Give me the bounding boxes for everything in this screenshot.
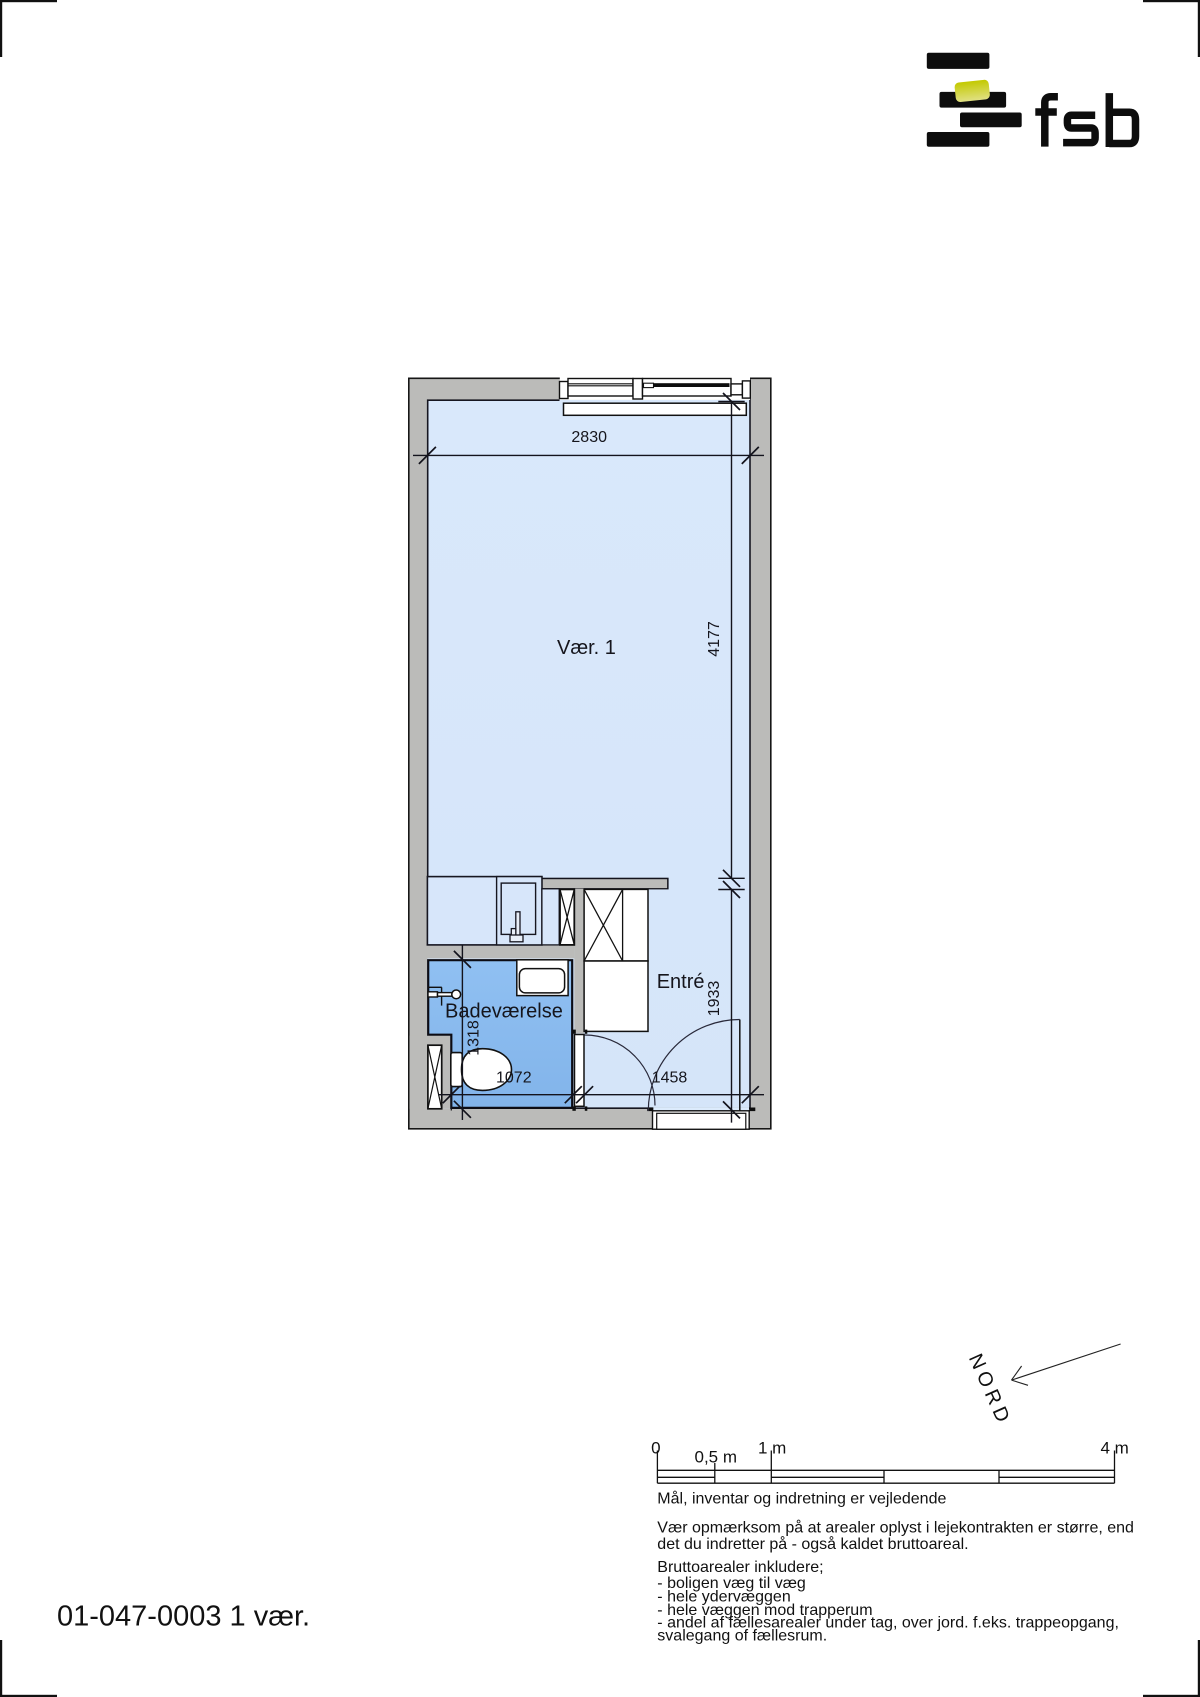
svg-text:4 m: 4 m bbox=[1101, 1439, 1129, 1458]
svg-text:01-047-0003 1 vær.: 01-047-0003 1 vær. bbox=[57, 1600, 310, 1632]
svg-text:1 m: 1 m bbox=[758, 1439, 786, 1458]
svg-text:1318: 1318 bbox=[466, 1020, 483, 1056]
svg-text:0: 0 bbox=[651, 1439, 660, 1458]
svg-text:Bruttoarealer inkludere;: Bruttoarealer inkludere; bbox=[657, 1559, 823, 1576]
svg-text:svalegang of fællesrum.: svalegang of fællesrum. bbox=[657, 1628, 827, 1645]
svg-text:Vær opmærksom på at arealer op: Vær opmærksom på at arealer oplyst i lej… bbox=[657, 1518, 1134, 1536]
svg-text:det du indretter på - også kal: det du indretter på - også kaldet brutto… bbox=[657, 1535, 968, 1553]
svg-text:Badeværelse: Badeværelse bbox=[445, 1001, 563, 1023]
svg-text:4177: 4177 bbox=[706, 621, 723, 657]
svg-text:1072: 1072 bbox=[496, 1069, 532, 1086]
svg-text:1458: 1458 bbox=[652, 1069, 688, 1086]
svg-text:Entré: Entré bbox=[657, 971, 705, 993]
svg-text:1933: 1933 bbox=[706, 981, 723, 1017]
svg-text:NORD: NORD bbox=[964, 1351, 1015, 1430]
svg-text:0,5 m: 0,5 m bbox=[695, 1448, 738, 1467]
svg-text:2830: 2830 bbox=[571, 429, 607, 446]
svg-text:Vær. 1: Vær. 1 bbox=[557, 637, 616, 659]
svg-text:Mål, inventar og indretning er: Mål, inventar og indretning er vejledend… bbox=[657, 1490, 946, 1508]
